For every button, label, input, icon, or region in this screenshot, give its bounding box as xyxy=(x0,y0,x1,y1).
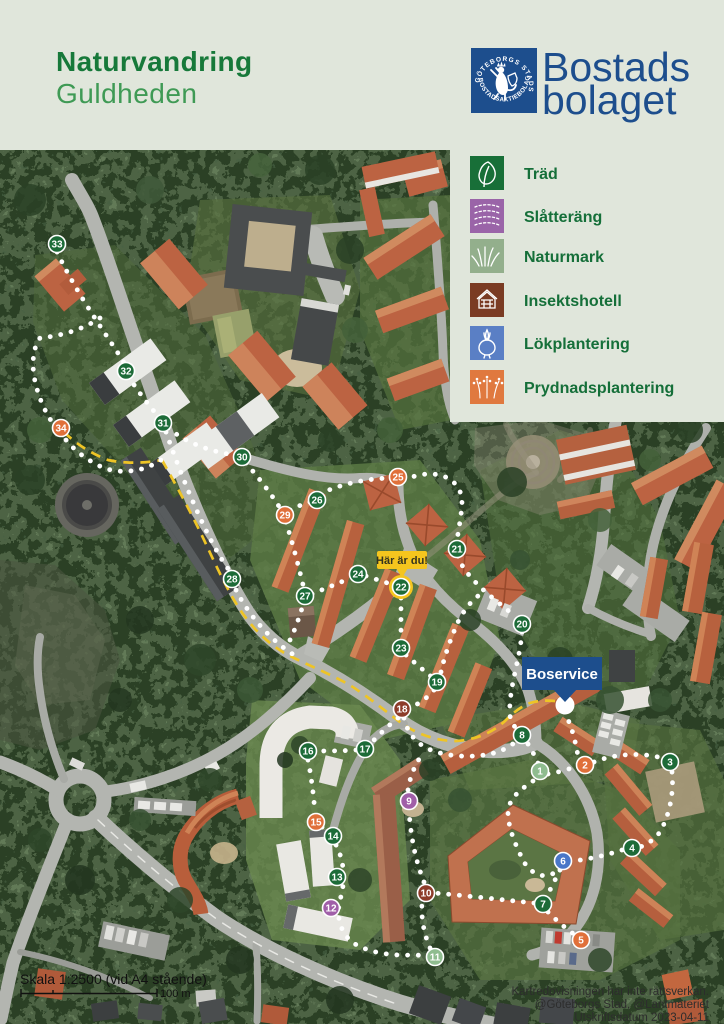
svg-text:10: 10 xyxy=(420,889,432,900)
svg-text:Guldheden: Guldheden xyxy=(56,78,198,109)
svg-text:25: 25 xyxy=(392,473,404,484)
svg-text:17: 17 xyxy=(359,745,371,756)
svg-text:Naturvandring: Naturvandring xyxy=(56,46,253,77)
svg-text:5: 5 xyxy=(578,936,584,947)
svg-text:34: 34 xyxy=(55,424,67,435)
svg-text:23: 23 xyxy=(395,644,407,655)
svg-text:100 m: 100 m xyxy=(160,988,191,1000)
svg-text:bolaget: bolaget xyxy=(542,77,677,123)
svg-text:Prydnadsplantering: Prydnadsplantering xyxy=(524,380,674,397)
svg-text:18: 18 xyxy=(396,705,408,716)
svg-text:7: 7 xyxy=(540,900,546,911)
svg-text:Här är du!: Här är du! xyxy=(376,555,428,567)
svg-text:13: 13 xyxy=(331,873,343,884)
svg-text:31: 31 xyxy=(157,419,169,430)
svg-text:27: 27 xyxy=(299,592,311,603)
svg-text:3: 3 xyxy=(667,758,673,769)
svg-text:28: 28 xyxy=(226,575,238,586)
svg-text:15: 15 xyxy=(310,818,322,829)
svg-text:11: 11 xyxy=(430,953,441,964)
svg-text:Skala 1:2500 (vid A4 stående): Skala 1:2500 (vid A4 stående) xyxy=(20,971,207,987)
svg-text:26: 26 xyxy=(311,496,323,507)
svg-text:30: 30 xyxy=(236,453,248,464)
svg-text:8: 8 xyxy=(519,731,525,742)
svg-text:Utskriftsdatum 2023-04-11: Utskriftsdatum 2023-04-11 xyxy=(574,1012,709,1024)
svg-text:21: 21 xyxy=(451,545,463,556)
svg-text:22: 22 xyxy=(395,583,407,594)
svg-text:19: 19 xyxy=(431,678,443,689)
svg-text:Boservice: Boservice xyxy=(526,666,598,683)
svg-text:24: 24 xyxy=(352,570,364,581)
svg-text:Träd: Träd xyxy=(524,166,558,183)
svg-text:29: 29 xyxy=(279,511,291,522)
svg-text:Lökplantering: Lökplantering xyxy=(524,336,630,353)
svg-text:33: 33 xyxy=(51,240,63,251)
svg-text:Kartredovisningen har inte rät: Kartredovisningen har inte rättsverkan. xyxy=(511,986,709,998)
svg-text:@Göteborgs Stad, @Lantmäteriet: @Göteborgs Stad, @Lantmäteriet xyxy=(535,999,710,1011)
svg-text:2: 2 xyxy=(582,761,588,772)
svg-text:12: 12 xyxy=(325,904,337,915)
svg-text:Insektshotell: Insektshotell xyxy=(524,293,622,310)
svg-text:9: 9 xyxy=(406,797,412,808)
svg-text:1: 1 xyxy=(537,767,543,778)
svg-text:4: 4 xyxy=(629,844,635,855)
svg-text:20: 20 xyxy=(516,620,528,631)
svg-text:Slåtteräng: Slåtteräng xyxy=(524,208,602,226)
svg-text:14: 14 xyxy=(327,832,339,843)
svg-text:32: 32 xyxy=(120,367,132,378)
svg-text:Naturmark: Naturmark xyxy=(524,249,604,266)
svg-text:16: 16 xyxy=(302,747,314,758)
svg-text:6: 6 xyxy=(560,857,566,868)
